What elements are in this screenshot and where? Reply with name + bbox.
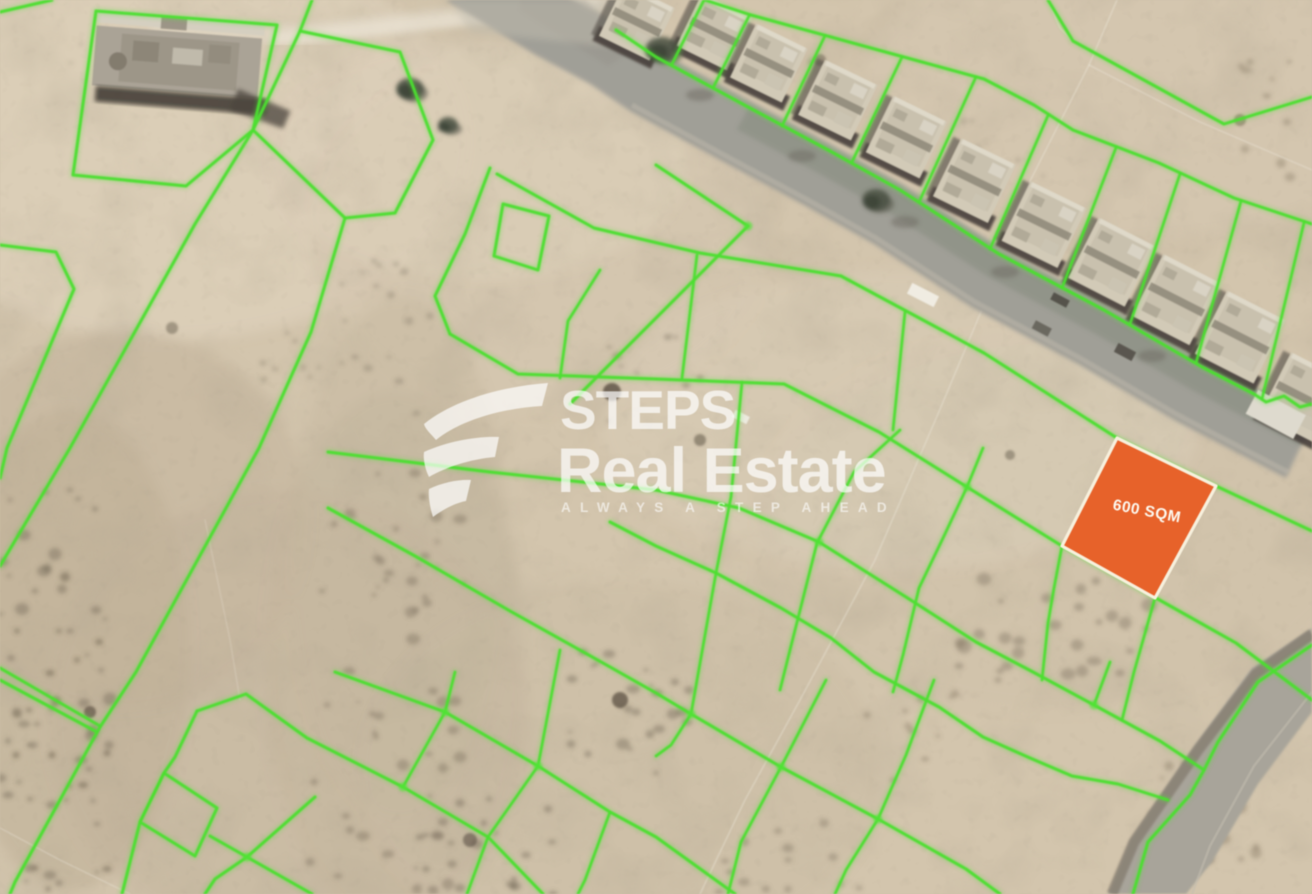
svg-text:STEPS: STEPS <box>560 379 735 441</box>
svg-text:Real Estate: Real Estate <box>557 436 886 506</box>
svg-text:ALWAYS A STEP AHEAD: ALWAYS A STEP AHEAD <box>561 500 896 515</box>
